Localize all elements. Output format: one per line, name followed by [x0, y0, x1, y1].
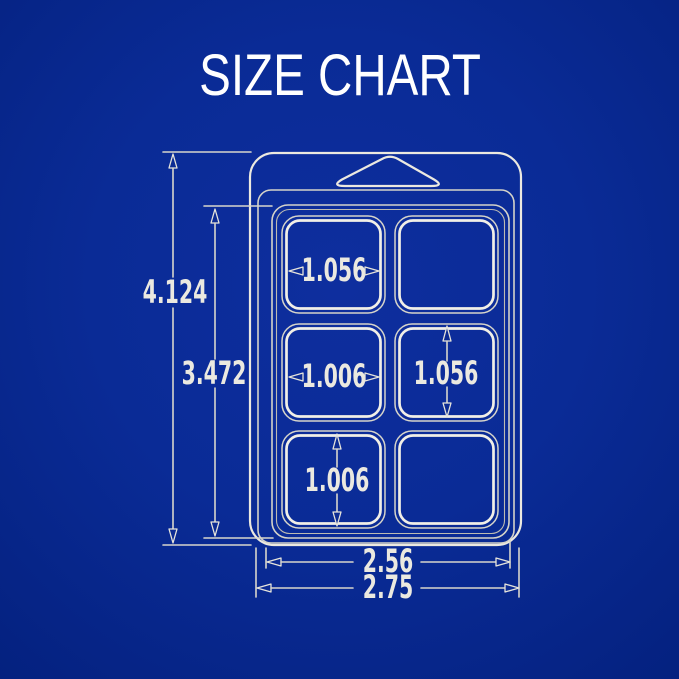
size-chart-image: SIZE CHART 4 [0, 0, 679, 679]
arrowhead-left [289, 373, 303, 381]
arrowhead-left [289, 267, 303, 275]
cavity-cell-top-right [395, 216, 498, 313]
size-chart-diagram: SIZE CHART 4 [0, 0, 679, 679]
cell-middle-left-width-label: 1.006 [302, 358, 367, 395]
dimension-cell-middle-right-height: 1.056 [414, 326, 479, 417]
hang-hole [337, 157, 439, 186]
page-title: SIZE CHART [199, 44, 481, 109]
arrowhead-left [267, 558, 281, 566]
arrowhead-right [505, 584, 519, 592]
dimension-overall-height: 4.124 [143, 152, 251, 545]
arrowhead-up [211, 209, 219, 223]
arrowhead-down [211, 522, 219, 536]
arrowhead-down [169, 529, 177, 543]
arrowhead-right [365, 373, 379, 381]
arrowhead-right [496, 558, 510, 566]
clamshell-package [250, 153, 521, 545]
cavity-cell-bottom-right-inner [400, 436, 494, 524]
overall-width-label: 2.75 [363, 569, 414, 606]
arrowhead-left [257, 584, 271, 592]
dimension-inner-height: 3.472 [182, 206, 273, 538]
arrowhead-up [169, 154, 177, 168]
dimension-cell-top-left-width: 1.056 [289, 252, 379, 289]
cell-top-left-width-label: 1.056 [302, 252, 367, 289]
cavity-cell-bottom-right [395, 431, 498, 528]
arrowhead-right [365, 267, 379, 275]
cell-middle-right-height-label: 1.056 [414, 355, 479, 392]
overall-height-label: 4.124 [143, 274, 208, 311]
cavity-cell-top-right-inner [400, 221, 494, 309]
arrowhead-down [443, 403, 451, 417]
dimension-cell-bottom-left-height: 1.006 [305, 434, 370, 526]
inner-height-label: 3.472 [182, 355, 247, 392]
dimension-cell-middle-left-width: 1.006 [289, 358, 379, 395]
